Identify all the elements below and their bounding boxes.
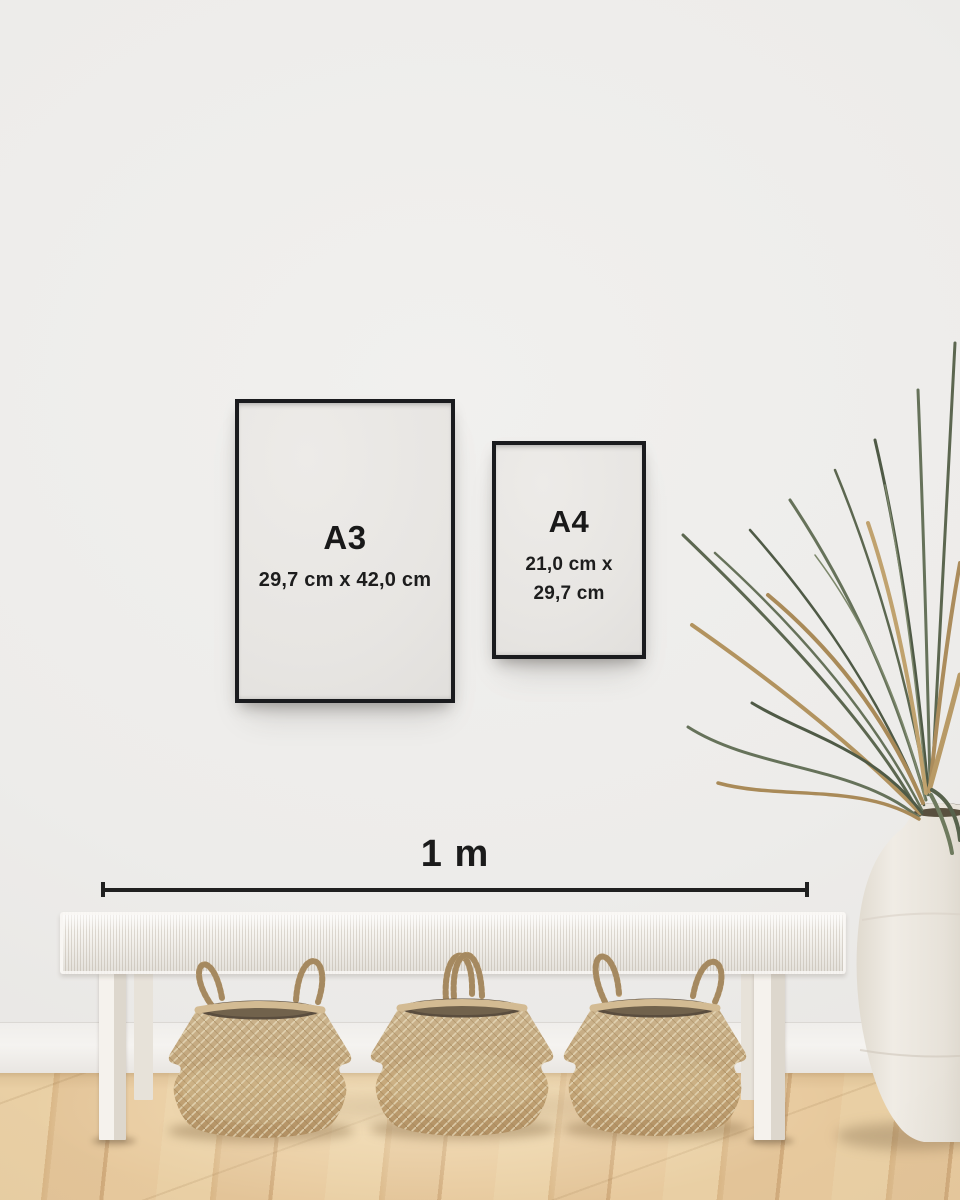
scale-tick-right	[805, 882, 809, 897]
seagrass-basket-1	[160, 940, 360, 1140]
scale-tick-left	[101, 882, 105, 897]
a4-dimensions-line1: 21,0 cm x	[525, 550, 612, 579]
a4-size-label: A4	[549, 504, 590, 540]
seagrass-basket-2	[362, 938, 562, 1138]
bench-leg-left-front	[99, 972, 126, 1140]
a3-paper: A3 29,7 cm x 42,0 cm	[239, 403, 451, 699]
bench-leg-left-rear	[134, 972, 153, 1100]
a4-dimensions: 21,0 cm x 29,7 cm	[525, 550, 612, 608]
interior-mockup-scene: A3 29,7 cm x 42,0 cm A4 21,0 cm x 29,7 c…	[0, 0, 960, 1200]
seagrass-basket-3	[555, 938, 755, 1138]
palm-plant	[620, 295, 960, 855]
bench-leg-right-front	[754, 972, 785, 1140]
one-meter-scale: 1 m	[101, 882, 809, 897]
a3-size-label: A3	[323, 519, 366, 557]
a3-frame: A3 29,7 cm x 42,0 cm	[235, 399, 455, 703]
scale-line	[101, 888, 809, 892]
a4-dimensions-line2: 29,7 cm	[525, 579, 612, 608]
a3-dimensions: 29,7 cm x 42,0 cm	[259, 569, 431, 592]
